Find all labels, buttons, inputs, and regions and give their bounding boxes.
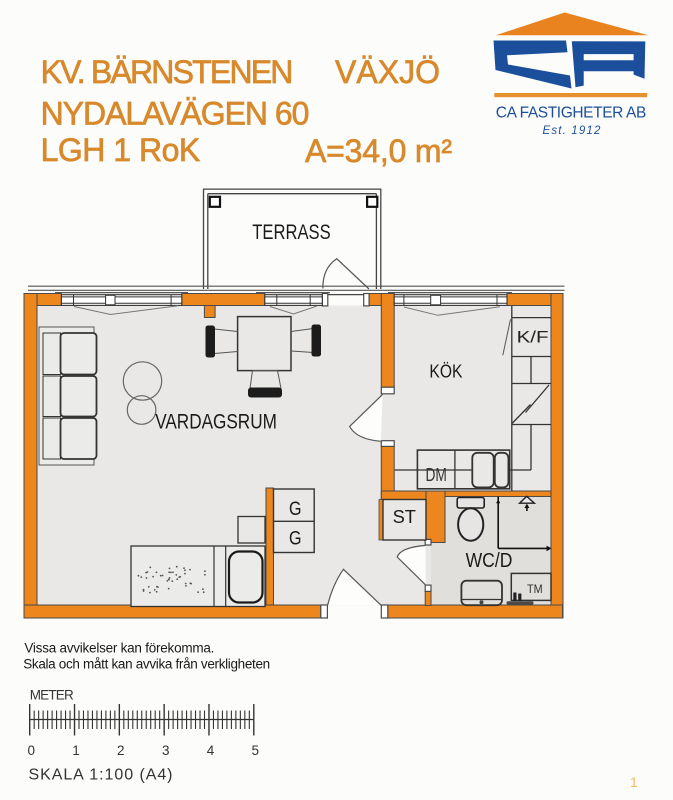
svg-text:Vissa avvikelser kan förekomma: Vissa avvikelser kan förekomma. <box>24 640 214 655</box>
svg-text:4: 4 <box>207 743 215 758</box>
svg-text:KÖK: KÖK <box>429 361 462 382</box>
svg-text:TERRASS: TERRASS <box>252 220 330 244</box>
svg-text:5: 5 <box>252 743 260 758</box>
svg-text:VÄXJÖ: VÄXJÖ <box>335 54 440 90</box>
svg-text:SKALA 1:100 (A4): SKALA 1:100 (A4) <box>29 767 173 784</box>
svg-text:K/F: K/F <box>517 328 549 346</box>
svg-text:1: 1 <box>72 743 80 758</box>
svg-text:KV. BÄRNSTENEN: KV. BÄRNSTENEN <box>41 54 294 90</box>
svg-text:Est. 1912: Est. 1912 <box>543 125 601 137</box>
svg-text:Skala och mått kan avvika från: Skala och mått kan avvika från verklighe… <box>23 657 270 672</box>
svg-text:2: 2 <box>117 743 125 758</box>
svg-text:ST: ST <box>393 507 416 527</box>
svg-text:CA FASTIGHETER AB: CA FASTIGHETER AB <box>496 105 647 122</box>
svg-text:DM: DM <box>426 464 447 485</box>
svg-text:G: G <box>289 529 302 550</box>
svg-text:A=34,0 m²: A=34,0 m² <box>305 133 452 169</box>
svg-text:3: 3 <box>162 743 170 758</box>
svg-text:METER: METER <box>30 687 74 702</box>
svg-text:VARDAGSRUM: VARDAGSRUM <box>155 410 277 434</box>
svg-text:G: G <box>289 499 302 520</box>
svg-text:WC/D: WC/D <box>466 550 513 572</box>
svg-text:LGH 1 RoK: LGH 1 RoK <box>41 132 201 168</box>
svg-text:NYDALAVÄGEN 60: NYDALAVÄGEN 60 <box>41 96 310 132</box>
svg-text:0: 0 <box>27 743 35 758</box>
svg-text:1: 1 <box>630 774 638 790</box>
svg-text:TM: TM <box>527 584 543 596</box>
